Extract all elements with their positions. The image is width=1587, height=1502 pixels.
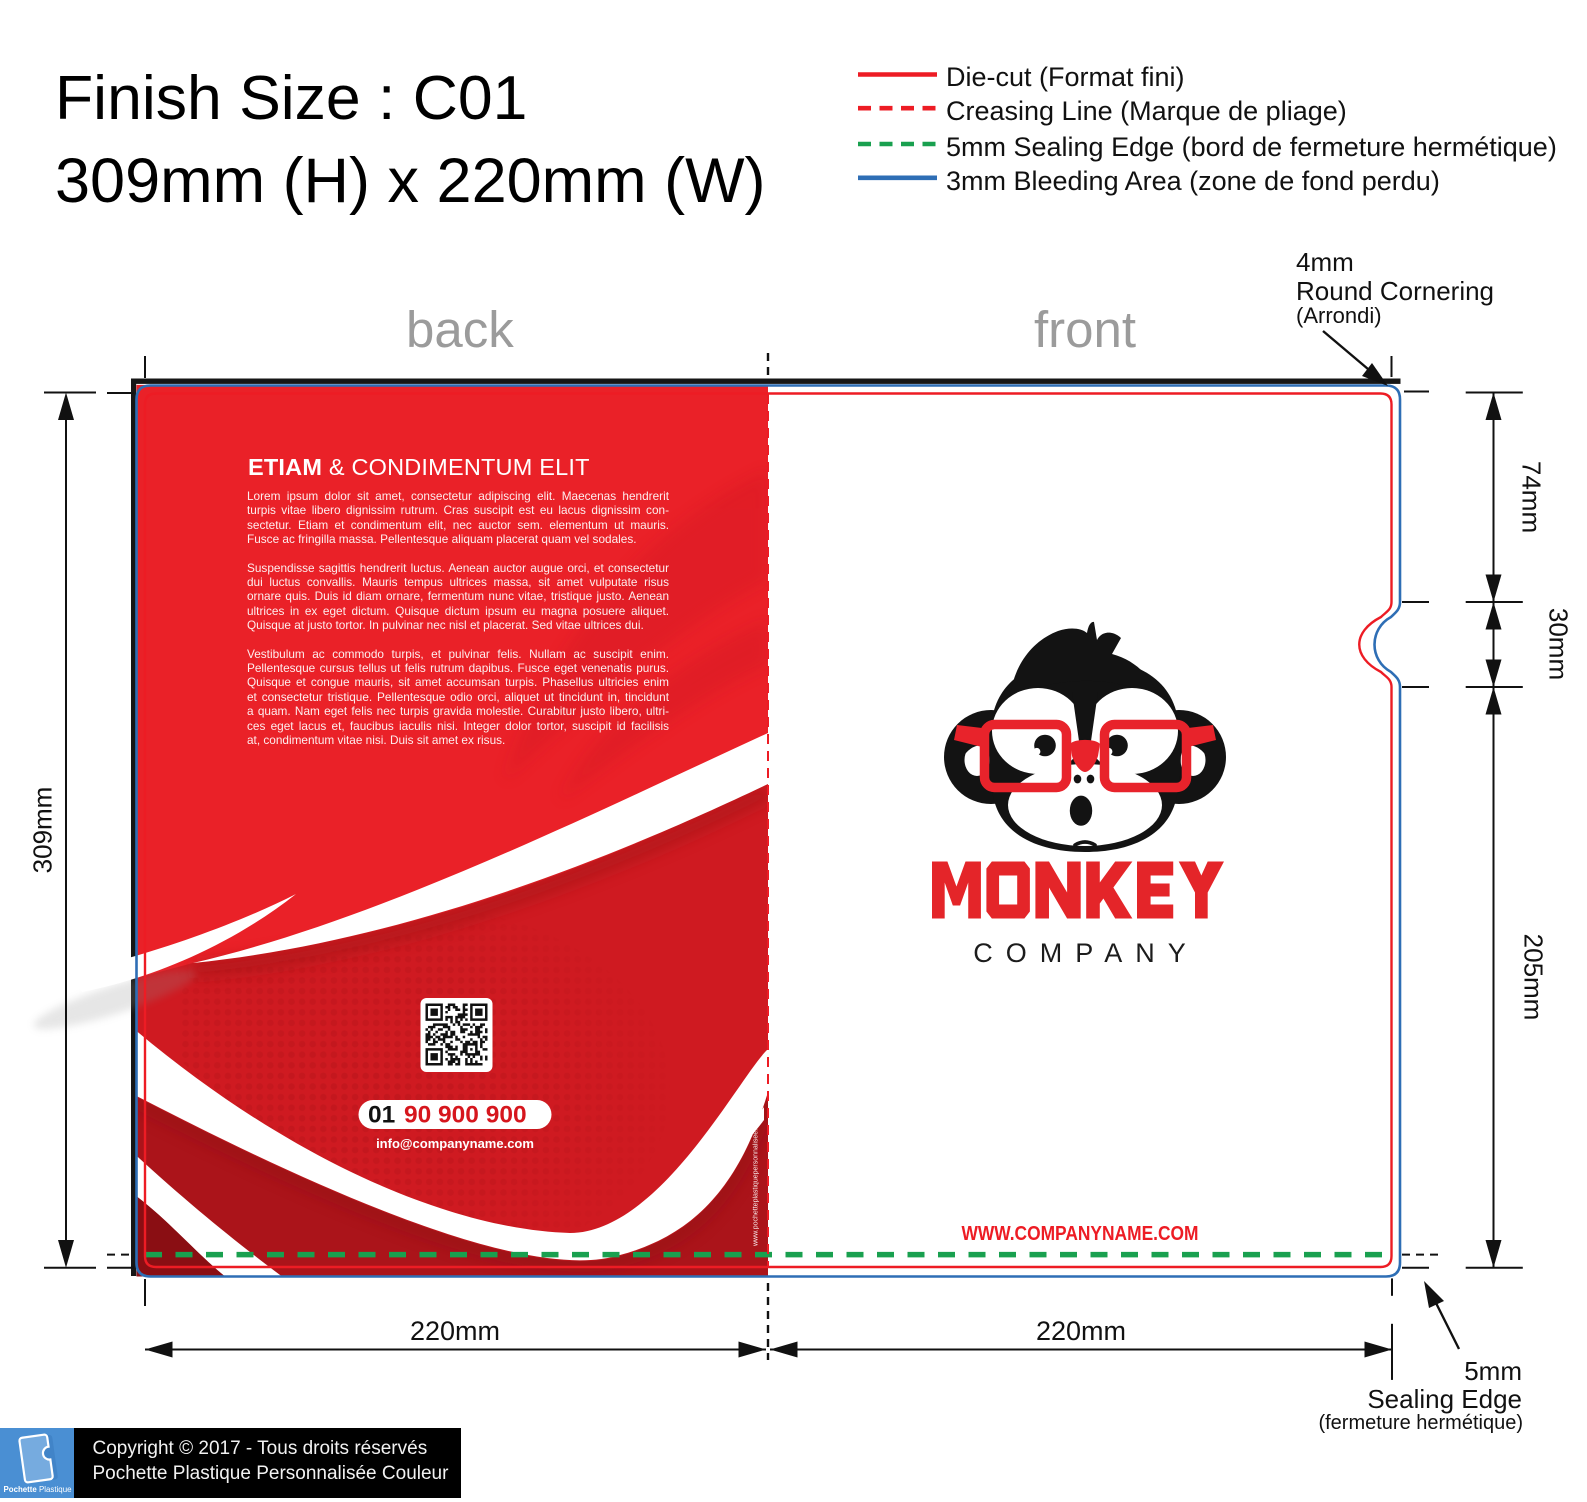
svg-text:WWW.COMPANYNAME.COM: WWW.COMPANYNAME.COM — [962, 1222, 1199, 1245]
svg-text:01: 01 — [368, 1102, 395, 1129]
svg-text:www.pochetteplastiquepersonnal: www.pochetteplastiquepersonnalisee.com — [753, 1115, 760, 1247]
svg-text:info@companyname.com: info@companyname.com — [376, 1136, 534, 1151]
svg-text:90 900 900: 90 900 900 — [404, 1102, 527, 1129]
svg-text:Pochette Plastique: Pochette Plastique — [4, 1485, 73, 1494]
